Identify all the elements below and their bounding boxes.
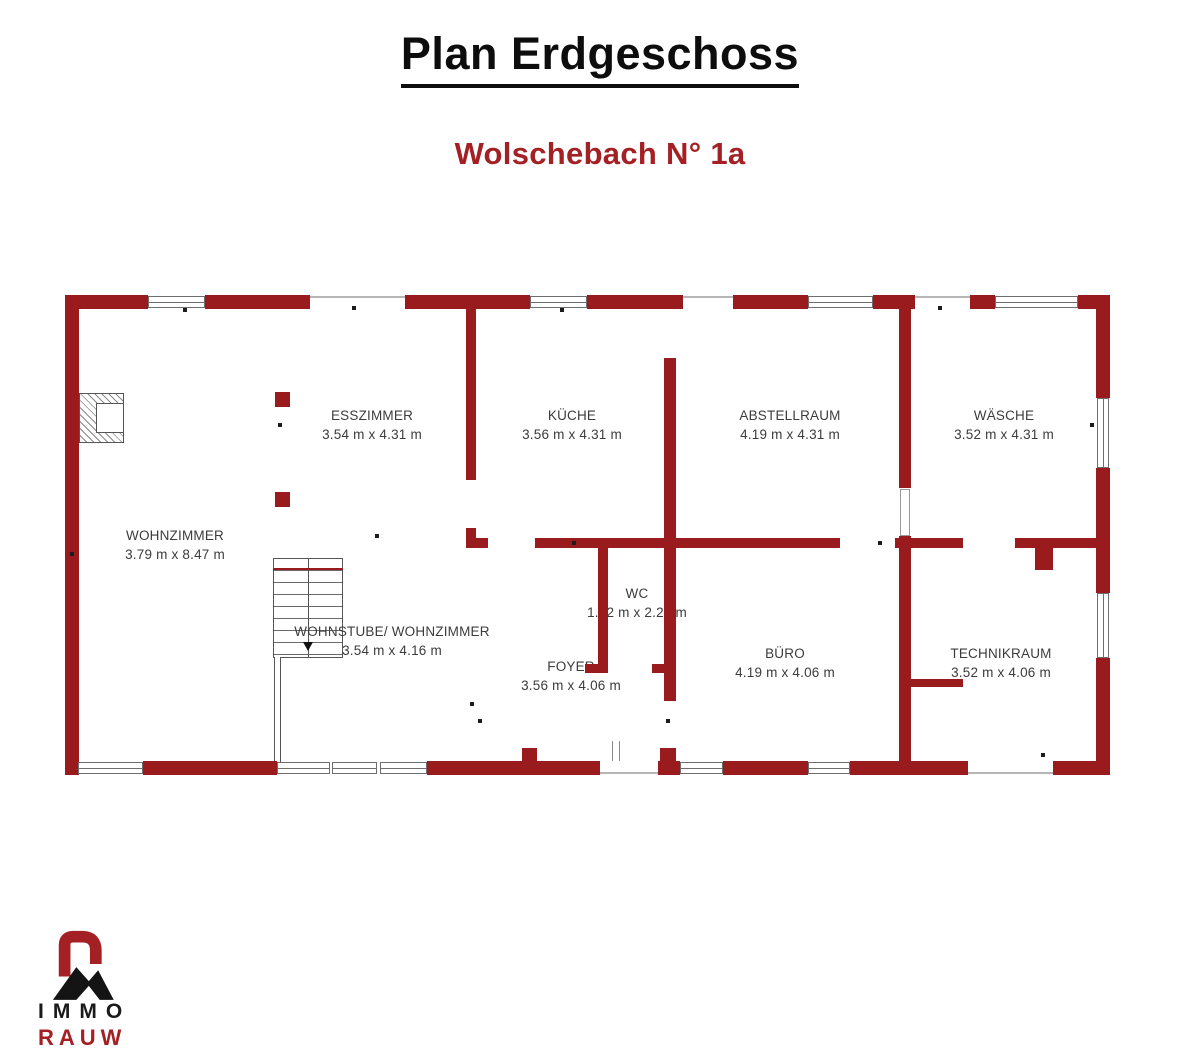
tick-mark (470, 702, 474, 706)
wall-bottom (65, 761, 78, 775)
wall-opening (915, 296, 970, 298)
tick-mark (878, 541, 882, 545)
wall-wc-left (598, 545, 608, 665)
tick-mark (375, 534, 379, 538)
logo-text-rauw: RAUW (38, 1025, 126, 1050)
staircase-line (273, 568, 343, 570)
tick-mark (278, 423, 282, 427)
door-frame (900, 489, 910, 536)
wall-stub (660, 748, 676, 762)
wall-stub (1035, 548, 1053, 570)
room-name: WOHNZIMMER (125, 526, 225, 545)
room-label-technikraum: TECHNIKRAUM 3.52 m x 4.06 m (950, 644, 1051, 682)
window (808, 762, 850, 774)
wall-buero-technikraum (899, 536, 911, 775)
room-label-waesche: WÄSCHE 3.52 m x 4.31 m (954, 406, 1054, 444)
wall-top (733, 295, 808, 309)
wall-abstellraum-waesche (899, 309, 911, 488)
wall-opening (600, 772, 658, 774)
tick-mark (938, 306, 942, 310)
window (995, 296, 1078, 308)
pillar (275, 492, 290, 507)
logo-icon (36, 925, 126, 1003)
room-label-buero: BÜRO 4.19 m x 4.06 m (735, 644, 835, 682)
wall-nub (466, 528, 476, 548)
wall-right (1096, 295, 1110, 398)
staircase-rail (274, 657, 281, 762)
window (78, 762, 143, 774)
tick-mark (1090, 423, 1094, 427)
chimney (79, 393, 124, 443)
room-dimensions: 4.19 m x 4.06 m (735, 663, 835, 682)
address-subtitle: Wolschebach N° 1a (455, 136, 746, 171)
page: Plan Erdgeschoss Wolschebach N° 1a (0, 0, 1200, 1050)
tick-mark (560, 308, 564, 312)
room-label-wohnstube: WOHNSTUBE/ WOHNZIMMER 3.54 m x 4.16 m (294, 622, 489, 660)
window (680, 762, 723, 774)
wall-stub (522, 748, 537, 762)
room-dimensions: 3.52 m x 4.31 m (954, 425, 1054, 444)
wall-bottom (723, 761, 808, 775)
wall-bottom (427, 761, 600, 775)
window (148, 296, 205, 308)
door-jamb (619, 741, 620, 761)
wall-bottom (143, 761, 277, 775)
room-dimensions: 3.54 m x 4.16 m (294, 641, 489, 660)
room-dimensions: 3.52 m x 4.06 m (950, 663, 1051, 682)
page-title: Plan Erdgeschoss (401, 28, 799, 88)
room-dimensions: 3.54 m x 4.31 m (322, 425, 422, 444)
wall-corridor (535, 538, 840, 548)
wall-top (970, 295, 995, 309)
door-jamb (612, 741, 613, 761)
pillar (275, 392, 290, 407)
wall-opening (968, 772, 1053, 774)
wall-nub (585, 664, 608, 673)
wall-top (205, 295, 310, 309)
logo-text-immo: IMMO (38, 1000, 131, 1024)
tick-mark (666, 719, 670, 723)
wall-corridor (1015, 538, 1098, 548)
room-name: WOHNSTUBE/ WOHNZIMMER (294, 622, 489, 641)
window (332, 762, 377, 774)
logo-r-bowl (65, 937, 96, 977)
room-name: ESSZIMMER (322, 406, 422, 425)
room-dimensions: 3.79 m x 8.47 m (125, 545, 225, 564)
wall-corridor (895, 538, 963, 548)
tick-mark (1041, 753, 1045, 757)
wall-kueche-abstellraum (664, 358, 676, 701)
wall-right (1096, 468, 1110, 593)
wall-top (587, 295, 683, 309)
wall-esszimmer-kueche (466, 309, 476, 480)
chimney-flue (96, 403, 124, 433)
window (530, 296, 587, 308)
tick-mark (70, 552, 74, 556)
room-name: WÄSCHE (954, 406, 1054, 425)
wall-nub (476, 538, 488, 548)
wall-opening (310, 296, 405, 298)
tick-mark (352, 306, 356, 310)
tick-mark (572, 541, 576, 545)
wall-bottom (1053, 761, 1110, 775)
room-name: ABSTELLRAUM (739, 406, 840, 425)
room-label-wohnzimmer: WOHNZIMMER 3.79 m x 8.47 m (125, 526, 225, 564)
window (1097, 398, 1109, 468)
wall-opening (683, 296, 733, 298)
wall-stub-technikraum (911, 679, 963, 687)
window (808, 296, 873, 308)
room-name: BÜRO (735, 644, 835, 663)
window (380, 762, 427, 774)
tick-mark (478, 719, 482, 723)
room-name: KÜCHE (522, 406, 622, 425)
wall-top (873, 295, 915, 309)
tick-mark (183, 308, 187, 312)
room-label-kueche: KÜCHE 3.56 m x 4.31 m (522, 406, 622, 444)
window (277, 762, 330, 774)
room-name: TECHNIKRAUM (950, 644, 1051, 663)
header: Plan Erdgeschoss (0, 28, 1200, 88)
company-logo-mark (36, 925, 126, 1008)
wall-left (65, 295, 79, 775)
wall-top (405, 295, 530, 309)
room-dimensions: 3.56 m x 4.31 m (522, 425, 622, 444)
room-label-abstellraum: ABSTELLRAUM 4.19 m x 4.31 m (739, 406, 840, 444)
window (1097, 593, 1109, 658)
wall-bottom (658, 761, 680, 775)
subheader: Wolschebach N° 1a (0, 136, 1200, 172)
wall-right (1096, 658, 1110, 775)
wall-nub (652, 664, 664, 673)
room-dimensions: 4.19 m x 4.31 m (739, 425, 840, 444)
room-label-esszimmer: ESSZIMMER 3.54 m x 4.31 m (322, 406, 422, 444)
room-dimensions: 3.56 m x 4.06 m (521, 676, 621, 695)
